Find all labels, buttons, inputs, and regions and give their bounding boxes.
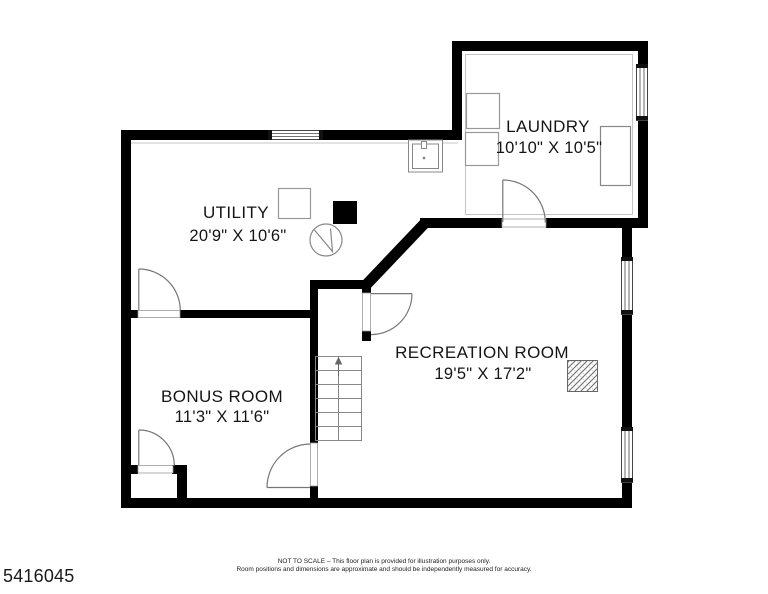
recreation-room-label: RECREATION ROOM	[395, 343, 569, 363]
bonus-room-label: BONUS ROOM	[161, 387, 283, 407]
dryer-icon	[466, 133, 499, 166]
door-swing-icon	[138, 430, 174, 473]
recreation-room-dimensions: 19'5" X 17'2"	[434, 365, 531, 384]
support-post-icon	[333, 201, 357, 224]
diagonal-wall	[366, 223, 425, 285]
floor-plan-page: LAUNDRY 10'10" X 10'5" UTILITY 20'9" X 1…	[0, 0, 768, 594]
disclaimer-line-1: NOT TO SCALE – This floor plan is provid…	[0, 558, 768, 566]
utility-room-dimensions: 20'9" X 10'6"	[189, 227, 286, 246]
bonus-room-dimensions: 11'3" X 11'6"	[175, 408, 270, 427]
window-icon	[636, 64, 648, 121]
sump-pump-icon	[310, 224, 342, 256]
walls	[121, 41, 648, 508]
disclaimer-text: NOT TO SCALE – This floor plan is provid…	[0, 558, 768, 574]
window-icon	[268, 130, 323, 140]
laundry-tub-icon	[601, 127, 631, 186]
door-swing-icon	[138, 269, 180, 318]
washer-icon	[467, 94, 500, 129]
stairs-icon	[316, 357, 362, 441]
column-hatch-icon	[568, 361, 598, 392]
laundry-room-label: LAUNDRY	[506, 117, 590, 137]
window-icon	[621, 427, 633, 483]
floor-plan-drawing	[0, 0, 768, 594]
window-icon	[621, 257, 633, 315]
equipment-square-icon	[279, 189, 311, 219]
door-swing-icon	[267, 443, 318, 488]
laundry-sink-icon	[409, 140, 443, 172]
laundry-room-dimensions: 10'10" X 10'5"	[496, 139, 603, 158]
utility-room-label: UTILITY	[203, 203, 269, 223]
door-swing-icon	[363, 293, 413, 335]
door-swing-icon	[502, 180, 546, 227]
disclaimer-line-2: Room positions and dimensions are approx…	[0, 566, 768, 574]
